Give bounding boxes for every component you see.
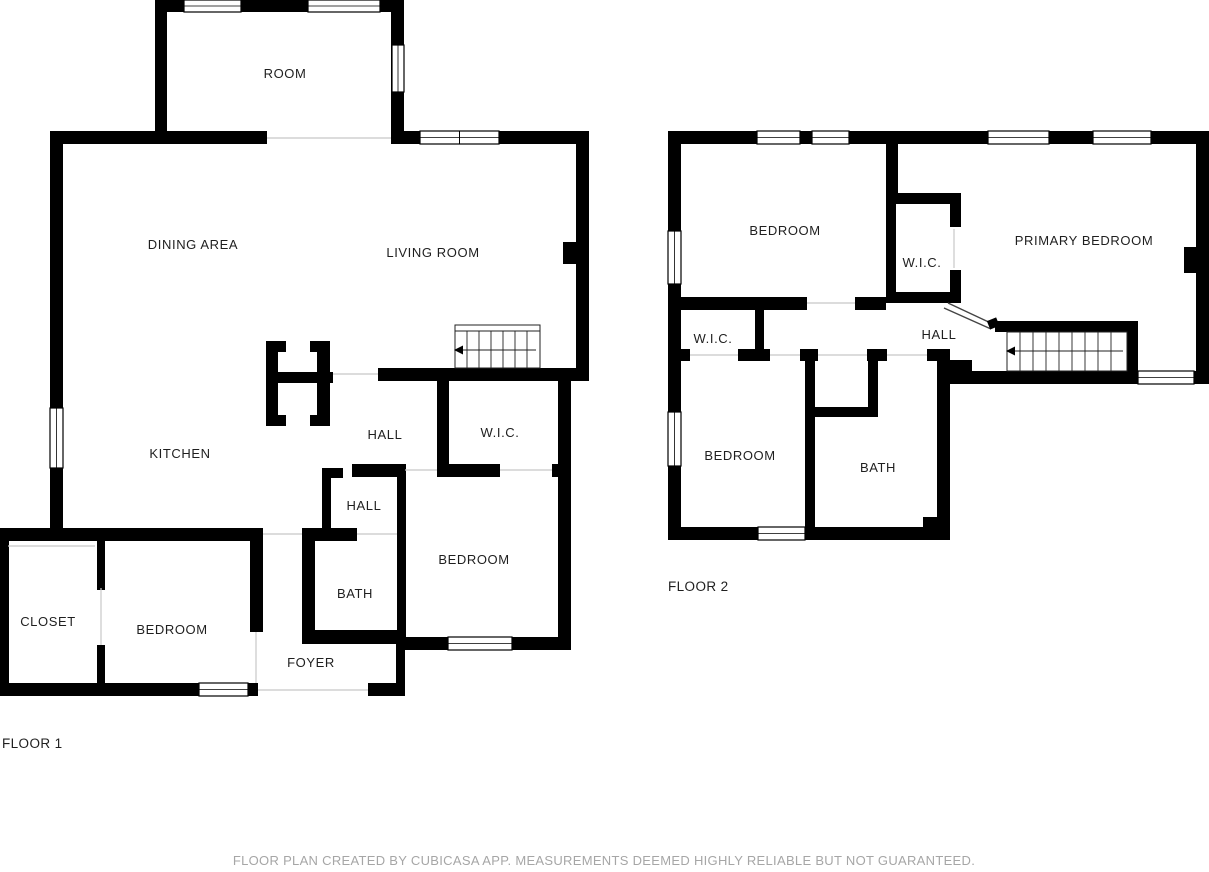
wall-segment — [302, 528, 315, 643]
wall-segment — [805, 407, 878, 417]
window — [184, 0, 241, 12]
wall-segment — [563, 242, 577, 264]
room-label-hall-upper: HALL — [368, 427, 403, 442]
room-label-bedroom-top: BEDROOM — [749, 223, 820, 238]
wall-segment — [668, 297, 807, 310]
room-label-room: ROOM — [264, 66, 307, 81]
wall-segment — [266, 415, 286, 426]
wall-segment — [855, 297, 886, 310]
wall-segment — [0, 528, 9, 696]
wall-segment — [668, 349, 690, 361]
wall-segment — [0, 528, 263, 541]
wall-segment — [927, 349, 950, 361]
window — [392, 45, 404, 92]
room-label-bedroom-center: BEDROOM — [438, 552, 509, 567]
wall-segment — [266, 341, 278, 426]
wall-segment — [805, 349, 815, 531]
room-label-living-room: LIVING ROOM — [386, 245, 479, 260]
floor1-door-openings — [8, 138, 552, 690]
door-opening-line — [944, 308, 991, 329]
room-label-hall-lower: HALL — [347, 498, 382, 513]
staircase — [454, 331, 540, 368]
room-label-dining-area: DINING AREA — [148, 237, 238, 252]
wall-segment — [250, 541, 263, 632]
floor2-caption: FLOOR 2 — [668, 579, 729, 594]
floor2-plan: BEDROOM W.I.C. PRIMARY BEDROOM W.I.C. HA… — [668, 131, 1209, 594]
window — [199, 683, 248, 696]
room-label-primary-bedroom: PRIMARY BEDROOM — [1015, 233, 1154, 248]
wall-segment — [886, 193, 896, 303]
floor1-staircase — [454, 325, 540, 368]
floor-plan-canvas: ROOM DINING AREA LIVING ROOM KITCHEN HAL… — [0, 0, 1209, 872]
wall-segment — [310, 415, 330, 426]
window — [50, 408, 63, 468]
room-label-wic-hall: W.I.C. — [694, 331, 733, 346]
wall-segment — [266, 372, 333, 383]
window — [420, 131, 499, 144]
room-label-wic-primary: W.I.C. — [903, 255, 942, 270]
wall-segment — [937, 352, 950, 540]
window — [448, 637, 512, 650]
wall-segment — [155, 0, 167, 140]
wall-segment — [738, 349, 770, 361]
wall-segment — [886, 292, 961, 303]
floor1-plan: ROOM DINING AREA LIVING ROOM KITCHEN HAL… — [0, 0, 589, 751]
wall-segment — [437, 464, 500, 477]
wall-segment — [378, 368, 589, 381]
wall-segment — [397, 464, 406, 646]
wall-segment — [97, 541, 105, 590]
room-label-bedroom-bottom: BEDROOM — [704, 448, 775, 463]
wall-segment — [322, 468, 343, 478]
window — [812, 131, 849, 144]
window — [1093, 131, 1151, 144]
room-label-closet: CLOSET — [20, 614, 76, 629]
wall-segment — [950, 360, 972, 373]
wall-segment — [886, 193, 961, 204]
room-label-foyer: FOYER — [287, 655, 335, 670]
window — [758, 527, 805, 540]
wall-segment — [317, 341, 330, 426]
wall-segment — [50, 131, 267, 144]
room-label-wic: W.I.C. — [481, 425, 520, 440]
wall-segment — [396, 632, 405, 696]
room-label-kitchen: KITCHEN — [149, 446, 210, 461]
floor1-caption: FLOOR 1 — [2, 736, 63, 751]
wall-segment — [302, 630, 405, 644]
floor-plan-page: ROOM DINING AREA LIVING ROOM KITCHEN HAL… — [0, 0, 1209, 872]
wall-segment — [1196, 131, 1209, 384]
wall-segment — [950, 193, 961, 227]
room-label-bath1: BATH — [337, 586, 373, 601]
window — [757, 131, 800, 144]
window — [668, 412, 681, 466]
wall-segment — [437, 381, 449, 467]
wall-segment — [1184, 247, 1196, 273]
window — [988, 131, 1049, 144]
wall-segment — [266, 341, 286, 352]
wall-segment — [576, 131, 589, 381]
wall-segment — [668, 131, 681, 540]
wall-segment — [558, 368, 571, 650]
floor2-staircase — [1006, 332, 1127, 371]
room-label-bedroom-left: BEDROOM — [136, 622, 207, 637]
wall-segment — [310, 341, 330, 352]
wall-segment — [923, 517, 950, 540]
wall-segment — [995, 321, 1135, 332]
wall-segment — [352, 464, 397, 477]
wall-segment — [97, 645, 105, 696]
window — [1138, 371, 1194, 384]
stair-landing-edge — [455, 325, 540, 331]
wall-segment — [1127, 321, 1138, 384]
disclaimer-text: FLOOR PLAN CREATED BY CUBICASA APP. MEAS… — [233, 853, 975, 868]
room-label-bath2: BATH — [860, 460, 896, 475]
room-label-hall2: HALL — [922, 327, 957, 342]
wall-segment — [50, 131, 63, 541]
staircase — [1006, 332, 1127, 371]
window — [308, 0, 380, 12]
window — [668, 231, 681, 284]
